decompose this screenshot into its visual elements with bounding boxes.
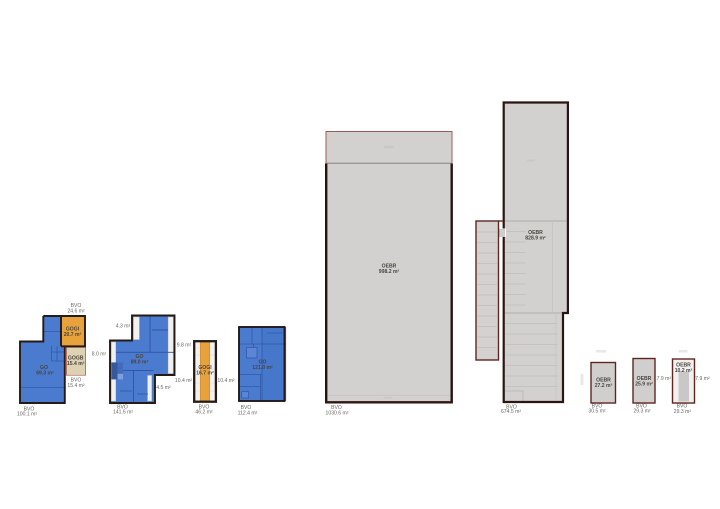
svg-text:112.4 m²: 112.4 m² bbox=[238, 410, 258, 416]
svg-text:16.7 m²: 16.7 m² bbox=[196, 370, 214, 376]
svg-text:15.4 m²: 15.4 m² bbox=[67, 361, 85, 367]
svg-text:10.4 m²: 10.4 m² bbox=[175, 378, 193, 384]
svg-text:25.9 m²: 25.9 m² bbox=[635, 381, 653, 387]
svg-text:7.9 m²: 7.9 m² bbox=[657, 376, 672, 382]
svg-text:674.5 m²: 674.5 m² bbox=[501, 409, 521, 415]
svg-text:7.9 m²: 7.9 m² bbox=[695, 376, 710, 382]
svg-text:29.3 m²: 29.3 m² bbox=[633, 409, 651, 415]
svg-text:100.1 m²: 100.1 m² bbox=[17, 412, 37, 418]
svg-text:121.0 m²: 121.0 m² bbox=[252, 365, 273, 371]
svg-text:46.2 m²: 46.2 m² bbox=[195, 409, 213, 415]
svg-text:1030.6 m²: 1030.6 m² bbox=[326, 410, 349, 416]
svg-text:29.3 m²: 29.3 m² bbox=[674, 409, 692, 415]
svg-text:9.8 m²: 9.8 m² bbox=[177, 342, 192, 348]
svg-text:27.2 m²: 27.2 m² bbox=[595, 383, 613, 389]
svg-text:15.4 m²: 15.4 m² bbox=[67, 383, 85, 389]
svg-text:20.7 m²: 20.7 m² bbox=[64, 332, 82, 338]
svg-text:8.0 m²: 8.0 m² bbox=[92, 351, 107, 357]
svg-text:828.9 m²: 828.9 m² bbox=[525, 236, 546, 242]
svg-text:89.0 m²: 89.0 m² bbox=[131, 360, 149, 366]
svg-text:4.3 m²: 4.3 m² bbox=[116, 323, 131, 329]
svg-text:10.4 m²: 10.4 m² bbox=[217, 378, 235, 384]
svg-text:69.3 m²: 69.3 m² bbox=[36, 371, 54, 377]
svg-text:30.5 m²: 30.5 m² bbox=[588, 409, 606, 415]
svg-text:141.6 m²: 141.6 m² bbox=[113, 410, 133, 416]
svg-text:24.6 m²: 24.6 m² bbox=[67, 309, 85, 315]
svg-text:10.2 m²: 10.2 m² bbox=[675, 368, 693, 374]
svg-text:998.2 m²: 998.2 m² bbox=[379, 269, 400, 275]
svg-text:4.5 m²: 4.5 m² bbox=[156, 385, 171, 391]
